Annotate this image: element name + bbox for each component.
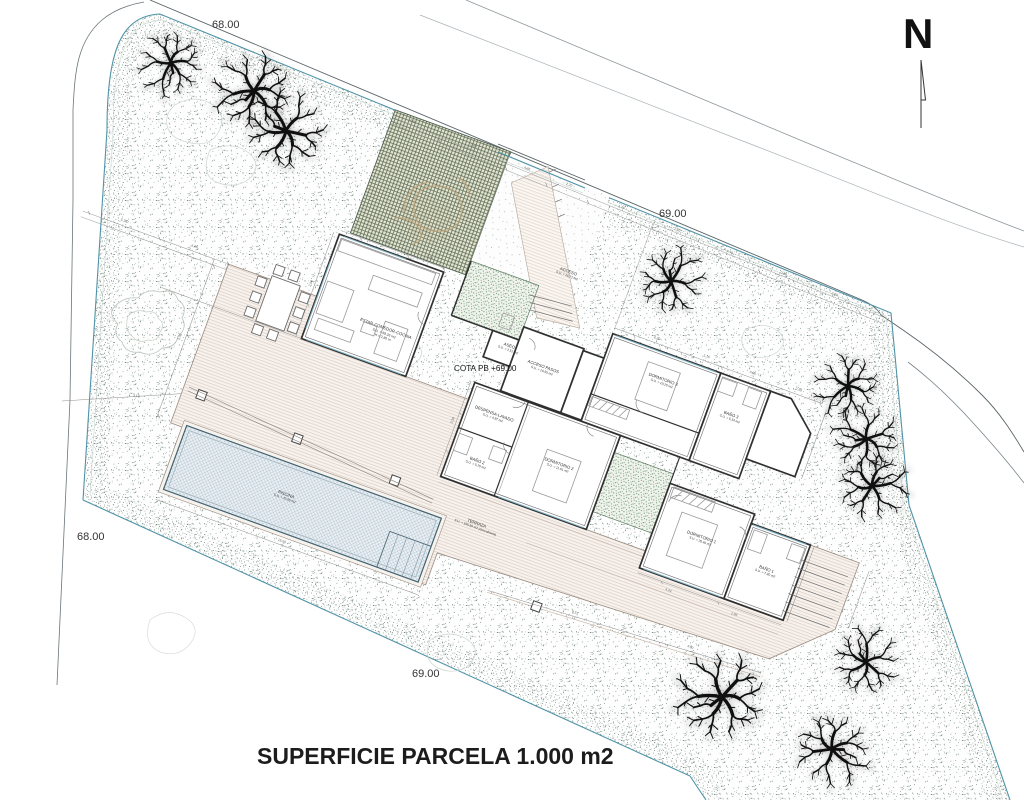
svg-text:SUPERFICIE PARCELA 1.000 m2: SUPERFICIE PARCELA 1.000 m2 [257,743,614,769]
svg-text:COTA PB +69.00: COTA PB +69.00 [454,364,517,373]
svg-text:3.10: 3.10 [133,394,140,398]
svg-text:69.00: 69.00 [659,208,687,220]
svg-text:68.00: 68.00 [212,19,240,31]
svg-text:N: N [903,10,933,57]
svg-text:68.00: 68.00 [77,531,105,543]
svg-text:69.00: 69.00 [412,668,440,680]
